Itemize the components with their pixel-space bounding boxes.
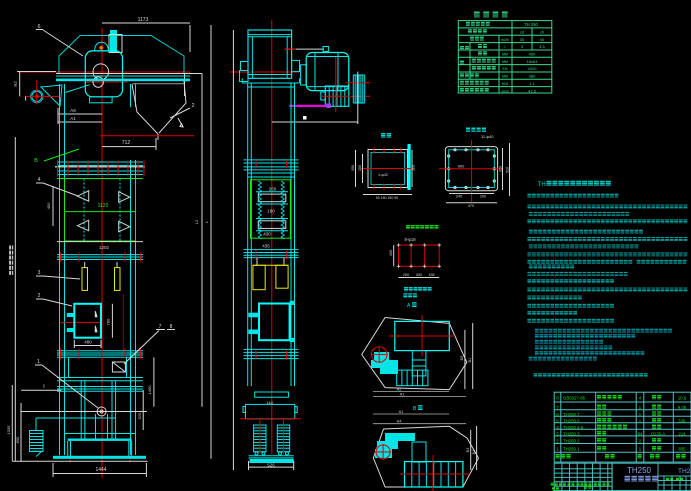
svg-text:712: 712 (122, 140, 131, 146)
svg-text:47.5: 47.5 (528, 88, 537, 93)
svg-text:zd: zd (520, 29, 524, 34)
svg-text:TH250.4-5: TH250.4-5 (563, 425, 584, 430)
svg-text:200: 200 (403, 273, 409, 277)
svg-text:TH250.1: TH250.1 (563, 447, 580, 452)
svg-text:zh: zh (540, 29, 544, 34)
svg-text:90 150 150 90: 90 150 150 90 (376, 196, 398, 200)
svg-text:30: 30 (520, 37, 525, 42)
svg-text:A1: A1 (70, 116, 76, 121)
svg-text:780: 780 (106, 318, 111, 325)
svg-text:A9: A9 (70, 108, 76, 113)
svg-text:320: 320 (412, 165, 416, 171)
svg-text:TH250.6: TH250.6 (563, 418, 580, 423)
svg-text:240: 240 (456, 195, 462, 199)
svg-text:MM: MM (502, 75, 508, 79)
svg-text:300: 300 (416, 273, 422, 277)
svg-text:B: B (34, 158, 38, 164)
svg-text:400: 400 (389, 250, 393, 256)
svg-text:84: 84 (638, 432, 643, 437)
svg-text:155: 155 (428, 273, 434, 277)
svg-text:800: 800 (15, 436, 20, 443)
svg-text:B4: B4 (466, 448, 470, 453)
svg-text:435: 435 (262, 244, 270, 249)
svg-text:214: 214 (679, 432, 687, 437)
svg-text:l: l (505, 44, 506, 49)
svg-text:≥320: ≥320 (528, 66, 538, 71)
svg-text:430: 430 (263, 232, 271, 237)
svg-text:KN: KN (503, 67, 508, 71)
svg-text:8-φ18: 8-φ18 (404, 237, 416, 242)
svg-text:380: 380 (529, 74, 536, 79)
svg-text:150: 150 (358, 165, 362, 171)
svg-text:3: 3 (38, 270, 41, 276)
svg-text:18x64: 18x64 (527, 59, 539, 64)
svg-text:1444: 1444 (95, 467, 106, 473)
svg-text:200: 200 (480, 195, 486, 199)
svg-text:450: 450 (46, 202, 51, 209)
svg-text:350: 350 (351, 165, 355, 171)
svg-text:TH250.7: TH250.7 (563, 412, 580, 417)
svg-text:10.6: 10.6 (678, 395, 687, 400)
svg-text:TH250: TH250 (627, 466, 652, 475)
svg-text:180: 180 (267, 209, 275, 214)
svg-text:480: 480 (84, 340, 92, 345)
svg-text:A1: A1 (399, 410, 404, 414)
svg-text:L2: L2 (194, 219, 199, 224)
svg-text:H2: H2 (13, 81, 18, 87)
svg-text:TH2: TH2 (678, 468, 691, 475)
svg-text:GB5027-86: GB5027-86 (563, 395, 586, 400)
svg-text:1202: 1202 (99, 245, 110, 250)
svg-text:320: 320 (499, 166, 503, 172)
svg-text:MM: MM (502, 60, 508, 64)
svg-text:450: 450 (529, 52, 536, 57)
svg-text:1-φ42: 1-φ42 (378, 173, 388, 177)
svg-text:m3/h: m3/h (501, 38, 509, 42)
svg-text:M/S: M/S (502, 82, 509, 86)
svg-text:1173: 1173 (138, 17, 149, 23)
svg-text:Q235-A: Q235-A (651, 432, 666, 437)
svg-text:4: 4 (38, 177, 41, 183)
svg-text:470: 470 (468, 204, 474, 208)
svg-text:2: 2 (38, 293, 41, 299)
svg-text:520: 520 (506, 167, 510, 173)
svg-text:TH250.3: TH250.3 (563, 432, 580, 437)
svg-text:1400: 1400 (147, 385, 152, 395)
svg-text:1335: 1335 (6, 425, 11, 435)
svg-text:900: 900 (458, 164, 465, 169)
svg-text:A1: A1 (400, 392, 405, 396)
svg-text:r/min: r/min (501, 89, 509, 93)
svg-text:1: 1 (37, 359, 40, 365)
svg-text:1120: 1120 (98, 203, 109, 209)
svg-text:536: 536 (679, 418, 687, 423)
svg-text:11-φ40: 11-φ40 (481, 134, 494, 139)
svg-text:520: 520 (137, 412, 142, 419)
svg-text:A4: A4 (397, 420, 402, 424)
svg-text:B3: B3 (472, 450, 476, 455)
svg-text:I: I (43, 384, 44, 390)
svg-text:9.05: 9.05 (678, 405, 687, 410)
svg-text:A2: A2 (397, 388, 402, 392)
svg-text:B5: B5 (460, 356, 464, 361)
svg-text:TH250.2: TH250.2 (563, 439, 580, 444)
svg-text:835: 835 (679, 447, 687, 452)
svg-text:TH: TH (538, 182, 546, 188)
svg-text:B1: B1 (468, 358, 472, 363)
svg-text:TH 250: TH 250 (524, 22, 538, 27)
svg-text:260: 260 (269, 187, 277, 192)
svg-text:1.1: 1.1 (529, 81, 535, 86)
svg-text:2: 2 (192, 103, 195, 109)
svg-text:4.5: 4.5 (539, 44, 545, 49)
svg-text:40: 40 (540, 37, 545, 42)
svg-text:MM: MM (502, 53, 508, 57)
